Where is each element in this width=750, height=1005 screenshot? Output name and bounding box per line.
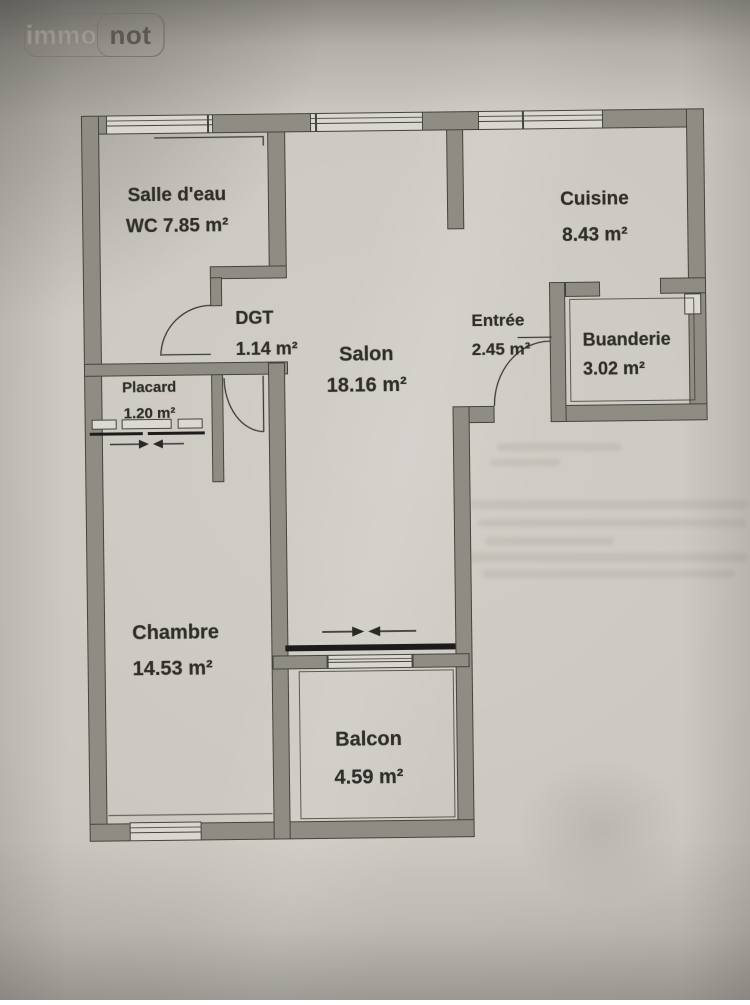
room-label-salle-deau: Salle d'eau WC 7.85 m²	[102, 179, 253, 243]
door-arc-salle-deau	[160, 305, 212, 356]
salle-deau-sill-line	[154, 137, 263, 147]
room-area: 2.45 m²	[472, 334, 552, 364]
balcon-arrow-head-right-icon	[352, 626, 364, 636]
room-name: Balcon	[303, 720, 433, 760]
room-label-buanderie: Buanderie 3.02 m²	[582, 324, 698, 383]
door-leaf-salle-deau	[162, 354, 211, 355]
room-area: WC 7.85 m²	[102, 210, 252, 243]
room-area: 14.53 m²	[132, 650, 242, 687]
room-name: Salle d'eau	[102, 179, 252, 212]
room-name: Cuisine	[527, 181, 662, 219]
room-name: Buanderie	[582, 324, 697, 354]
room-label-salon: Salon 18.16 m²	[299, 339, 435, 403]
doors-and-symbols-overlay	[0, 0, 750, 1005]
placard-arrow-head-right-icon	[139, 440, 149, 449]
placard-arrow-head-left-icon	[153, 439, 163, 448]
room-label-chambre: Chambre 14.53 m²	[132, 614, 243, 687]
room-label-placard: Placard 1.20 m²	[94, 374, 205, 427]
room-label-entree: Entrée 2.45 m²	[471, 305, 552, 364]
room-name: Chambre	[132, 614, 242, 651]
room-area: 8.43 m²	[527, 217, 662, 255]
room-name: DGT	[235, 302, 315, 334]
photographed-floor-plan-page: immo not	[0, 0, 750, 1000]
chambre-floor-line	[108, 814, 272, 816]
room-area: 18.16 m²	[299, 370, 434, 403]
room-label-balcon: Balcon 4.59 m²	[303, 720, 434, 798]
floor-plan: Salle d'eau WC 7.85 m² Cuisine 8.43 m² D…	[0, 0, 750, 1005]
room-area: 4.59 m²	[304, 758, 434, 798]
balcon-arrow-head-left-icon	[368, 626, 380, 636]
room-area: 1.20 m²	[94, 400, 204, 427]
room-name: Salon	[299, 339, 434, 372]
room-label-cuisine: Cuisine 8.43 m²	[527, 181, 663, 255]
door-leaf-chambre	[263, 376, 264, 432]
door-arc-chambre	[224, 378, 264, 432]
room-area: 3.02 m²	[583, 353, 698, 383]
room-name: Placard	[94, 374, 204, 401]
room-name: Entrée	[471, 305, 551, 335]
